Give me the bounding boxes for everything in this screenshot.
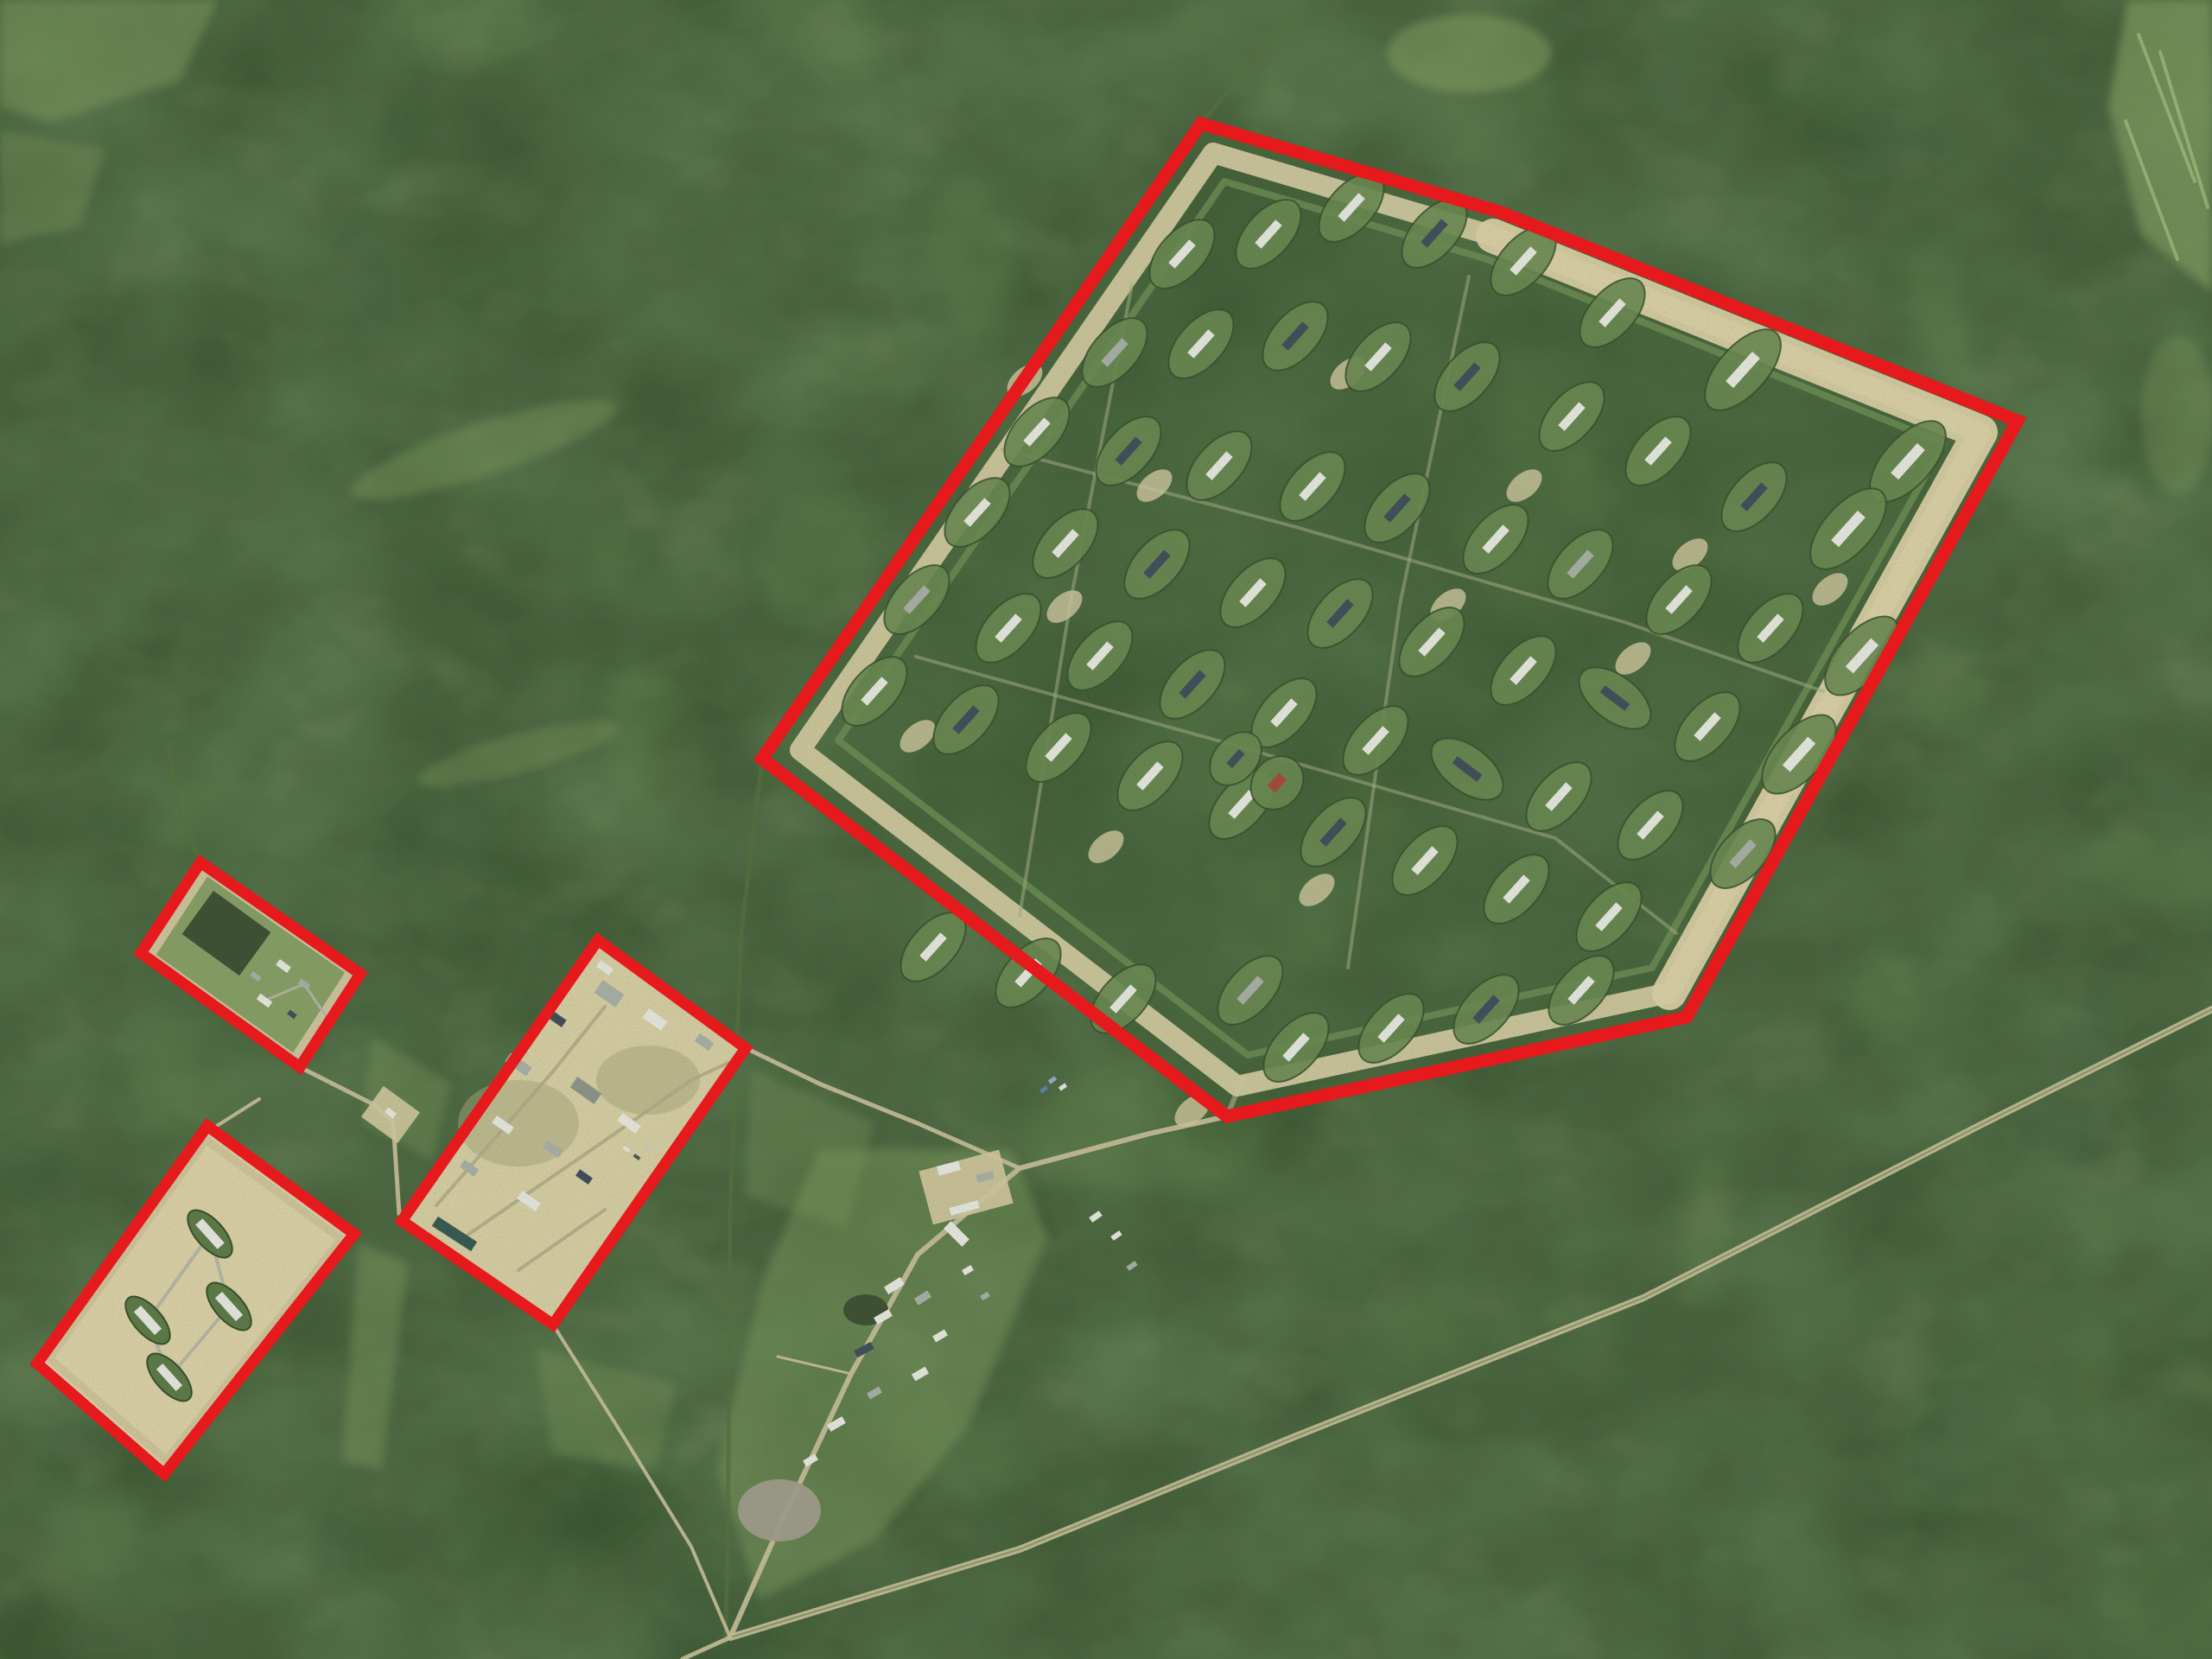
satellite-map: Satellite aerial image of a dense green … xyxy=(0,0,2212,1659)
image-grain xyxy=(0,0,2212,1659)
satellite-image: Satellite aerial image of a dense green … xyxy=(0,0,2212,1659)
grain-texture xyxy=(0,0,2212,1659)
